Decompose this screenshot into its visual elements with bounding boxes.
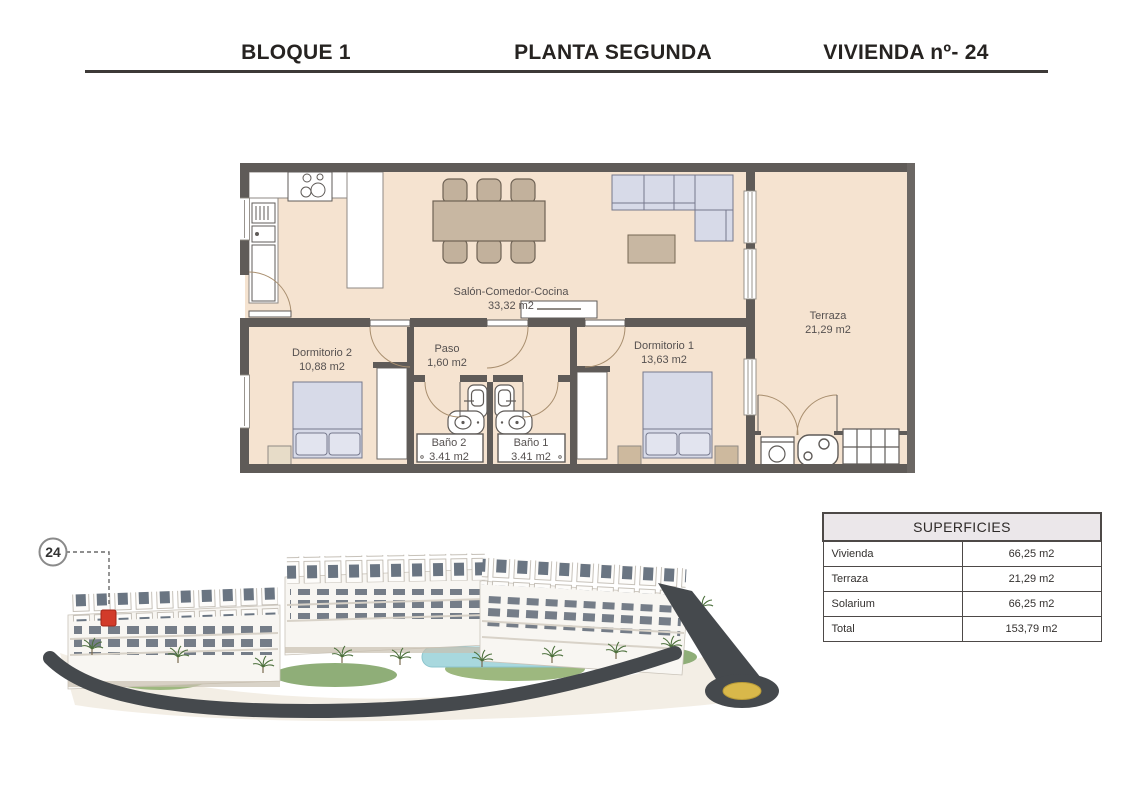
table-row: Vivienda 66,25 m2 xyxy=(823,541,1101,567)
row-label: Total xyxy=(823,617,962,642)
nightstand xyxy=(268,446,291,466)
room-label-bano-1: Baño 13.41 m2 xyxy=(511,436,551,464)
site-render: 24 xyxy=(30,533,792,723)
room-label-bano-2: Baño 23.41 m2 xyxy=(429,436,469,464)
header-rule xyxy=(85,70,1048,73)
sink-icon xyxy=(496,411,532,434)
room-label-terraza: Terraza21,29 m2 xyxy=(805,309,851,337)
row-value: 21,29 m2 xyxy=(962,567,1101,592)
room-label-dormitorio-2: Dormitorio 210,88 m2 xyxy=(292,346,352,374)
header-unit: VIVIENDA nº- 24 xyxy=(792,41,1020,67)
header-floor: PLANTA SEGUNDA xyxy=(480,41,746,67)
building-left xyxy=(68,587,280,689)
room-label-paso: Paso1,60 m2 xyxy=(427,342,467,370)
dining-table xyxy=(433,201,545,241)
cooktop-icon xyxy=(288,172,332,201)
boiler-icon xyxy=(798,435,838,466)
sink-icon xyxy=(448,411,484,434)
table-row: Terraza 21,29 m2 xyxy=(823,567,1101,592)
kitchen-appliances xyxy=(252,203,275,301)
washing-machine-icon xyxy=(761,437,794,465)
row-label: Vivienda xyxy=(823,541,962,567)
row-value: 66,25 m2 xyxy=(962,592,1101,617)
row-value: 153,79 m2 xyxy=(962,617,1101,642)
row-label: Solarium xyxy=(823,592,962,617)
floor-plan: Salón-Comedor-Cocina33,32 m2 Paso1,60 m2… xyxy=(240,163,915,473)
room-label-dormitorio-1: Dormitorio 113,63 m2 xyxy=(634,339,694,367)
bed-dormitorio-1 xyxy=(643,372,712,458)
coffee-table xyxy=(628,235,675,263)
unit-marker-badge: 24 xyxy=(40,539,67,566)
nightstand xyxy=(715,446,738,466)
surfaces-title: SUPERFICIES xyxy=(823,513,1101,541)
header-block: BLOQUE 1 xyxy=(190,41,402,67)
wardrobe-dormitorio-2 xyxy=(377,368,407,459)
stairs-icon xyxy=(843,429,899,464)
site-render-drawing: 24 xyxy=(30,533,792,723)
highlighted-unit xyxy=(101,610,116,626)
row-label: Terraza xyxy=(823,567,962,592)
wardrobe-dormitorio-1 xyxy=(577,372,607,459)
surfaces-table: SUPERFICIES Vivienda 66,25 m2 Terraza 21… xyxy=(822,512,1102,642)
building-middle xyxy=(285,553,488,655)
room-label-salon: Salón-Comedor-Cocina33,32 m2 xyxy=(454,285,569,313)
roundabout xyxy=(705,674,779,708)
nightstand xyxy=(618,446,641,466)
bed-dormitorio-2 xyxy=(293,382,362,458)
table-row: Total 153,79 m2 xyxy=(823,617,1101,642)
row-value: 66,25 m2 xyxy=(962,541,1101,567)
table-row: Solarium 66,25 m2 xyxy=(823,592,1101,617)
svg-text:24: 24 xyxy=(45,544,61,560)
plan-sheet: BLOQUE 1 PLANTA SEGUNDA VIVIENDA nº- 24 xyxy=(0,0,1132,800)
